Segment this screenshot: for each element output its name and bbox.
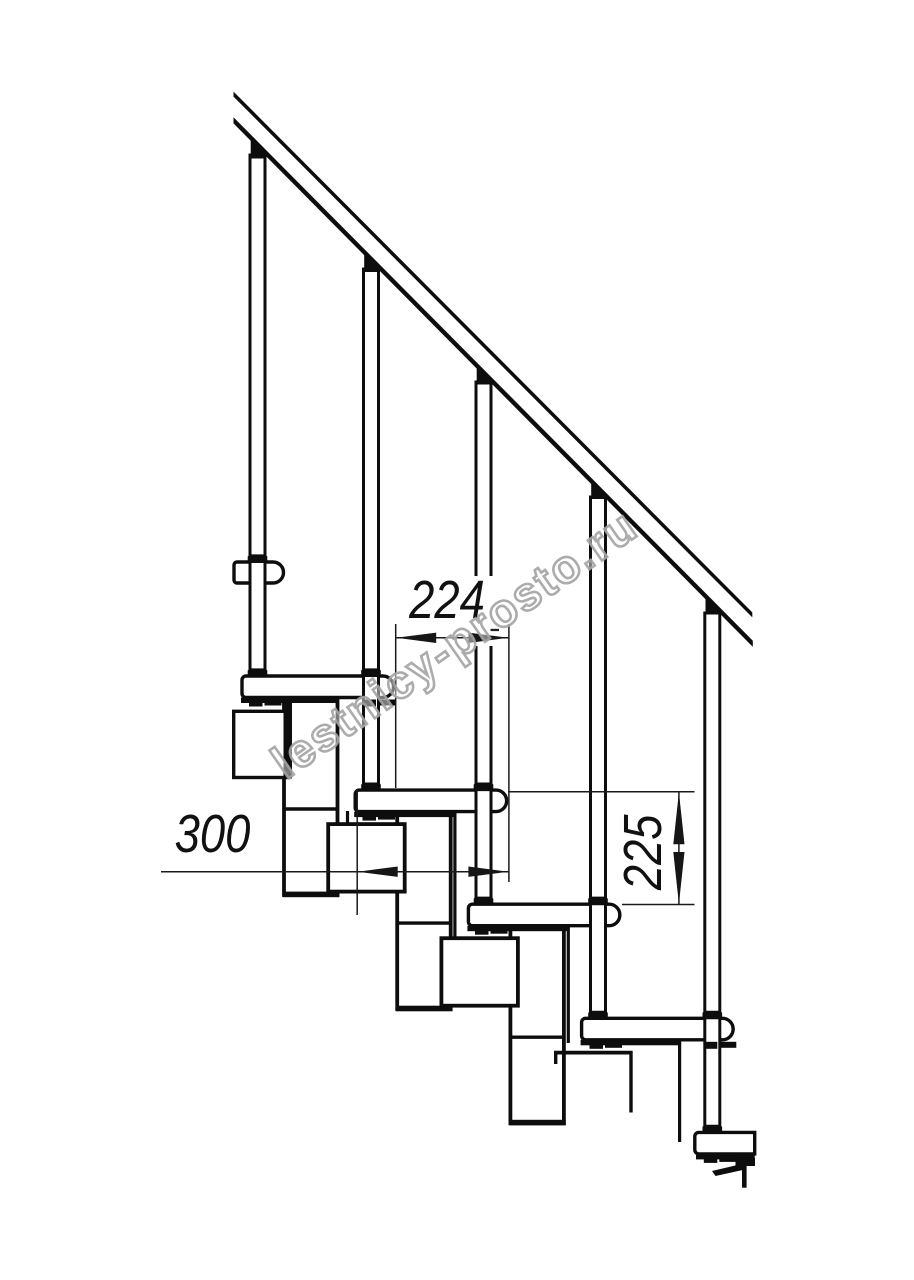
svg-text:225: 225 xyxy=(612,814,673,891)
svg-text:300: 300 xyxy=(175,803,251,864)
